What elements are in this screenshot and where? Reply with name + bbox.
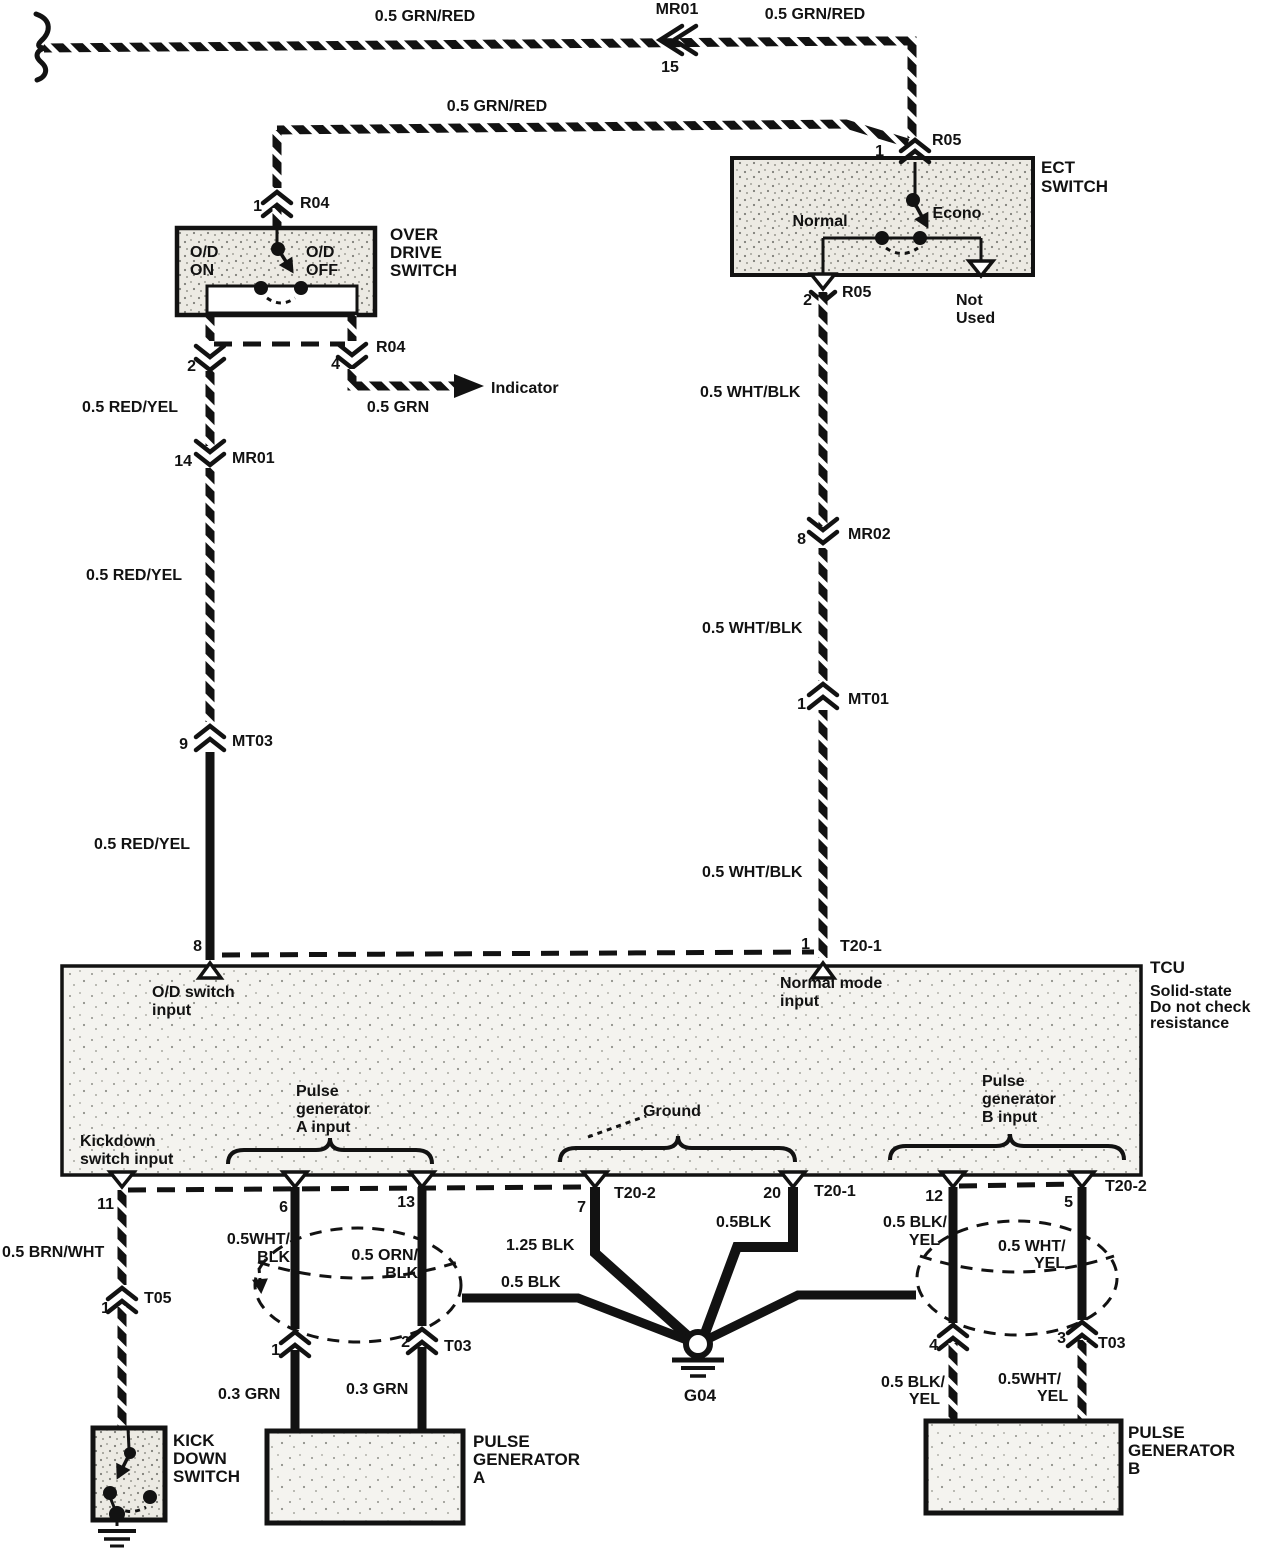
wire-label: 0.5 GRN/RED — [765, 6, 865, 23]
pga-title: PULSE — [473, 1432, 530, 1451]
od-on-label: O/D — [190, 244, 218, 261]
ect-notused-label: Used — [956, 310, 995, 327]
tcu-kickdown-label: switch input — [80, 1151, 174, 1168]
tcu-pgb-label: generator — [982, 1091, 1056, 1108]
tcu-pga-label: generator — [296, 1101, 370, 1118]
kd-contact-right — [143, 1490, 157, 1504]
od-pin2-number: 2 — [187, 358, 196, 375]
connector-mr02-label: MR02 — [848, 526, 891, 543]
connector-t03-label: T03 — [1098, 1335, 1126, 1352]
pgb-title: GENERATOR — [1128, 1441, 1235, 1460]
wire-label: 0.5WHT/ — [998, 1371, 1062, 1388]
t03-pin4-number: 4 — [929, 1337, 938, 1354]
kd-lead — [128, 1428, 129, 1449]
tcu-name: TCU — [1150, 958, 1185, 977]
tcu-pin6-number: 6 — [279, 1199, 288, 1216]
wire-grn-red-branch — [277, 124, 908, 143]
wire-label: 0.5 BLK/ — [881, 1374, 946, 1391]
connector-r05-pin1-label: R05 — [932, 132, 961, 149]
od-contact-on — [254, 281, 268, 295]
tcu-note: resistance — [1150, 1015, 1229, 1032]
connector-t20-1-label: T20-1 — [814, 1183, 856, 1200]
wire-label: 0.5 ORN/ — [351, 1247, 418, 1264]
ect-contact-econo — [913, 231, 927, 245]
pulse-generator-b-box — [926, 1421, 1121, 1513]
t05-pin-number: 1 — [101, 1300, 110, 1317]
tcu-pin5-notch — [1070, 1172, 1094, 1187]
diagram-canvas: 0.5 GRN/RED MR01 15 0.5 GRN/RED 0.5 GRN/… — [0, 0, 1264, 1550]
ect-pin1-number: 1 — [875, 143, 884, 160]
pgb-title: B — [1128, 1459, 1140, 1478]
wire-label: 0.5 BLK — [501, 1274, 561, 1291]
connector-t05-label: T05 — [144, 1290, 172, 1307]
tcu-pgb-label: Pulse — [982, 1073, 1025, 1090]
wire-label: YEL — [1034, 1255, 1065, 1272]
wire-indicator — [352, 369, 456, 386]
indicator-wire-label: 0.5 GRN — [367, 399, 429, 416]
wire-label: BLK — [385, 1265, 418, 1282]
wire-label: 0.5 GRN/RED — [375, 8, 475, 25]
indicator-arrow — [454, 374, 484, 398]
ground-wire-pin7 — [595, 1187, 690, 1338]
tcu-pin13-number: 13 — [397, 1194, 415, 1211]
ect-pin2-notch — [811, 274, 835, 289]
wire-label: 0.5WHT/ — [227, 1231, 291, 1248]
od-title: OVER — [390, 225, 438, 244]
connector-mt03-label: MT03 — [232, 733, 273, 750]
wire-label: 0.5 RED/YEL — [94, 836, 190, 853]
wire-label: 0.5 WHT/BLK — [700, 384, 801, 401]
connector-r04-pin4-label: R04 — [376, 339, 405, 356]
tcu-od-input-label: input — [152, 1002, 192, 1019]
tcu-pin11-number: 11 — [97, 1196, 114, 1213]
tcu-note: Solid-state — [1150, 983, 1232, 1000]
od-pin1-number: 1 — [253, 198, 262, 215]
indicator-label: Indicator — [491, 380, 559, 397]
connector-mt01-label: MT01 — [848, 691, 889, 708]
od-contact-bar — [207, 286, 357, 313]
od-contact-off — [294, 281, 308, 295]
t03-pin1-number: 1 — [271, 1342, 280, 1359]
tcu-od-input-label: O/D switch — [152, 984, 235, 1001]
mt03-pin-number: 9 — [179, 736, 188, 753]
wire-label: 0.5 WHT/BLK — [702, 620, 803, 637]
wire-label: 0.5 BRN/WHT — [2, 1244, 104, 1261]
kickdown-title: DOWN — [173, 1449, 227, 1468]
od-title: SWITCH — [390, 261, 457, 280]
tcu-pga-label: A input — [296, 1119, 351, 1136]
tcu-bottom-dashed-link-left — [128, 1187, 588, 1190]
wire-label: 0.5 RED/YEL — [86, 567, 182, 584]
wire-label: 0.5 WHT/ — [998, 1238, 1066, 1255]
pga-title: GENERATOR — [473, 1450, 580, 1469]
tcu-bottom-dashed-link-right — [959, 1184, 1075, 1186]
od-on-label: ON — [190, 262, 214, 279]
wire-label: 0.3 GRN — [346, 1381, 408, 1398]
tcu-pga-label: Pulse — [296, 1083, 339, 1100]
pulse-generator-a-box — [267, 1431, 463, 1523]
tcu-normal-input-label: Normal mode — [780, 975, 882, 992]
connector-t03-label: T03 — [444, 1338, 472, 1355]
tcu-pin8-number: 8 — [193, 938, 202, 955]
tcu-note: Do not check — [1150, 999, 1251, 1016]
ect-switch-box — [732, 158, 1033, 275]
tcu-ground-label: Ground — [643, 1103, 701, 1120]
wire-label: 1.25 BLK — [506, 1237, 575, 1254]
splice-mr01-label: MR01 — [656, 1, 699, 18]
tcu-pin20-notch — [781, 1172, 805, 1187]
wire-label: 0.5 BLK/ — [883, 1214, 948, 1231]
tcu-normal-input-label: input — [780, 993, 820, 1010]
kickdown-title: KICK — [173, 1431, 215, 1450]
ect-normal-label: Normal — [792, 213, 847, 230]
connector-r04-pin4-chevron — [338, 344, 366, 368]
od-pin4-number: 4 — [331, 356, 340, 373]
connector-t20-1-label: T20-1 — [840, 938, 882, 955]
tcu-top-dashed-link — [222, 952, 814, 955]
mr01-pin-number: 14 — [174, 453, 192, 470]
connector-r05-pin2-label: R05 — [842, 284, 871, 301]
connector-t20-2-label: T20-2 — [614, 1185, 656, 1202]
wire-label: YEL — [909, 1391, 940, 1408]
connector-t20-2-label: T20-2 — [1105, 1178, 1147, 1195]
wire-label: 0.5 RED/YEL — [82, 399, 178, 416]
t03-pin2-number: 2 — [401, 1334, 410, 1351]
ect-title: SWITCH — [1041, 177, 1108, 196]
kickdown-title: SWITCH — [173, 1467, 240, 1486]
tcu-pin13-notch — [410, 1172, 434, 1187]
tcu-pgb-label: B input — [982, 1109, 1038, 1126]
wire-label: 0.5 GRN/RED — [447, 98, 547, 115]
ect-pin2-number: 2 — [803, 292, 812, 309]
connector-mt01-pin1-chevron — [809, 684, 837, 708]
mr02-pin-number: 8 — [797, 531, 806, 548]
ect-notused-label: Not — [956, 292, 983, 309]
tcu-pin7-notch — [583, 1172, 607, 1187]
connector-r04-pin1-label: R04 — [300, 195, 329, 212]
wire-label: BLK — [257, 1249, 290, 1266]
connector-r04-pin2-chevron — [196, 346, 224, 370]
tcu-pin5-number: 5 — [1064, 1194, 1073, 1211]
pga-title: A — [473, 1468, 485, 1487]
ground-drain-right — [706, 1295, 916, 1340]
tcu-pin20-number: 20 — [763, 1185, 781, 1202]
ect-title: ECT — [1041, 158, 1076, 177]
wire-label: YEL — [909, 1232, 940, 1249]
t03-pin3-number: 3 — [1057, 1330, 1066, 1347]
wire-label: 0.5 WHT/BLK — [702, 864, 803, 881]
od-title: DRIVE — [390, 243, 442, 262]
od-off-label: OFF — [306, 262, 338, 279]
wire-label: 0.3 GRN — [218, 1386, 280, 1403]
pgb-title: PULSE — [1128, 1423, 1185, 1442]
tcu-pin7-number: 7 — [577, 1199, 586, 1216]
connector-mt03-pin9-chevron — [196, 726, 224, 750]
wire-label: YEL — [1037, 1388, 1068, 1405]
tcu-pin11-notch — [110, 1172, 134, 1187]
ect-contact-normal — [875, 231, 889, 245]
splice-mr01-pin: 15 — [661, 59, 679, 76]
wire-label: 0.5BLK — [716, 1214, 772, 1231]
tcu-pin6-notch — [283, 1172, 307, 1187]
od-off-label: O/D — [306, 244, 334, 261]
connector-mr01-label: MR01 — [232, 450, 275, 467]
wiring-diagram: 0.5 GRN/RED MR01 15 0.5 GRN/RED 0.5 GRN/… — [0, 0, 1264, 1550]
ground-wire-pin20 — [704, 1187, 793, 1336]
mt01-pin-number: 1 — [797, 696, 806, 713]
ground-terminal — [686, 1332, 710, 1356]
pga-shield-leader — [259, 1268, 261, 1291]
ect-econo-label: Econo — [933, 205, 982, 222]
tcu-kickdown-label: Kickdown — [80, 1133, 156, 1150]
ground-name: G04 — [684, 1386, 717, 1405]
tcu-pin12-number: 12 — [925, 1188, 943, 1205]
